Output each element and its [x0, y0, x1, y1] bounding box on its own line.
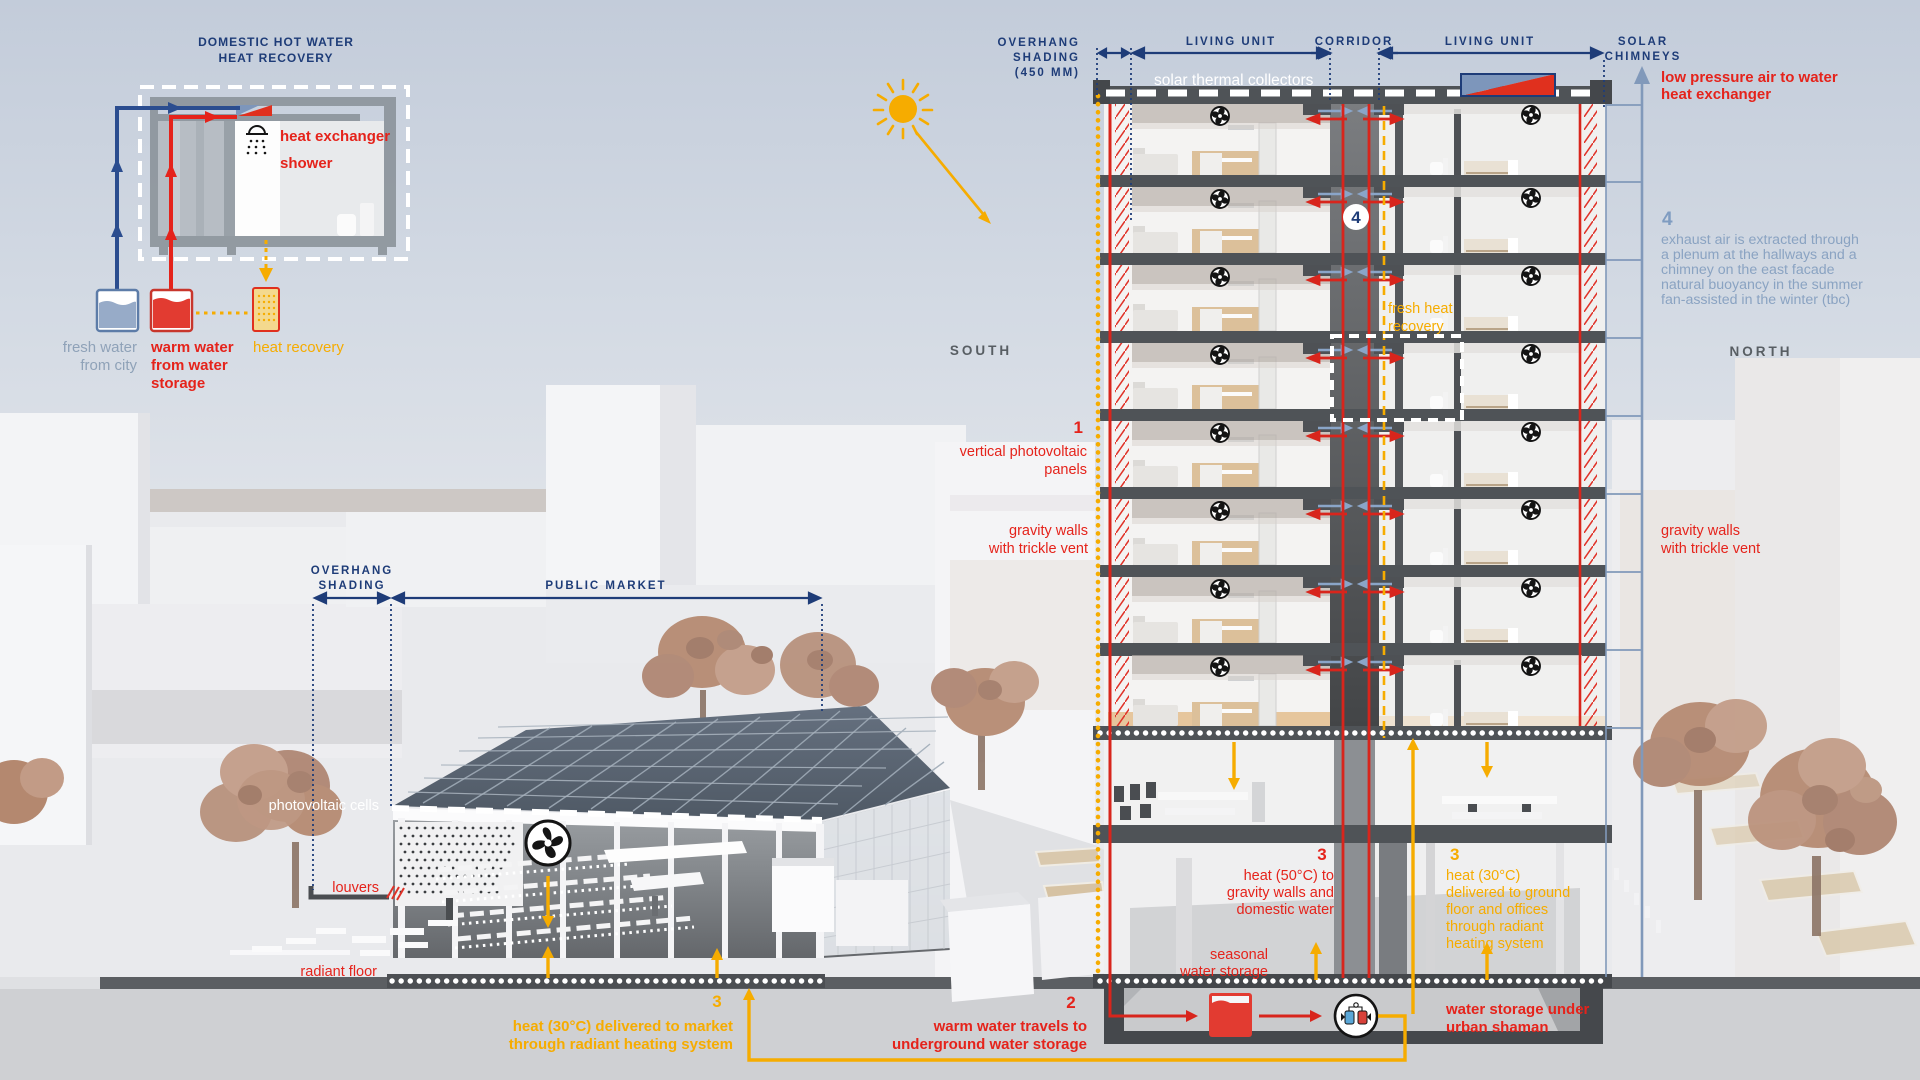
svg-text:through radiant: through radiant	[1446, 919, 1544, 935]
svg-text:underground water storage: underground water storage	[892, 1036, 1087, 1053]
svg-text:seasonal: seasonal	[1210, 947, 1268, 963]
svg-text:with trickle vent: with trickle vent	[1660, 541, 1760, 557]
svg-text:exhaust air is extracted throu: exhaust air is extracted through	[1661, 232, 1859, 248]
svg-text:SOLAR: SOLAR	[1618, 36, 1668, 48]
svg-text:HEAT RECOVERY: HEAT RECOVERY	[218, 51, 333, 65]
svg-text:3: 3	[1450, 845, 1459, 864]
svg-text:fan-assisted in the winter (tb: fan-assisted in the winter (tbc)	[1661, 292, 1850, 308]
svg-text:solar thermal collectors: solar thermal collectors	[1154, 72, 1314, 89]
svg-text:domestic water: domestic water	[1236, 902, 1334, 918]
svg-text:low pressure air to water: low pressure air to water	[1661, 69, 1838, 86]
svg-text:from city: from city	[80, 357, 137, 374]
svg-text:heat (50°C) to: heat (50°C) to	[1244, 868, 1334, 884]
svg-text:(450 MM): (450 MM)	[1015, 67, 1080, 79]
svg-text:CHIMNEYS: CHIMNEYS	[1605, 51, 1682, 63]
svg-text:OVERHANG: OVERHANG	[998, 37, 1080, 49]
svg-text:2: 2	[1066, 993, 1075, 1012]
svg-text:gravity walls: gravity walls	[1661, 523, 1740, 539]
svg-text:LIVING UNIT: LIVING UNIT	[1186, 36, 1276, 48]
svg-text:SOUTH: SOUTH	[950, 343, 1012, 358]
svg-text:heat exchanger: heat exchanger	[1661, 86, 1771, 103]
svg-text:PUBLIC MARKET: PUBLIC MARKET	[545, 580, 666, 592]
svg-text:CORRIDOR: CORRIDOR	[1315, 36, 1394, 48]
svg-text:4: 4	[1351, 208, 1361, 227]
svg-text:recovery: recovery	[1388, 319, 1444, 335]
svg-text:a plenum at the hallways and a: a plenum at the hallways and a	[1661, 247, 1857, 263]
svg-text:water storage: water storage	[1179, 964, 1268, 980]
svg-text:radiant floor: radiant floor	[300, 964, 377, 980]
svg-text:fresh heat: fresh heat	[1388, 301, 1453, 317]
svg-text:gravity walls: gravity walls	[1009, 523, 1088, 539]
svg-text:delivered to ground: delivered to ground	[1446, 885, 1570, 901]
svg-text:with trickle vent: with trickle vent	[988, 541, 1088, 557]
svg-text:heat (30°C): heat (30°C)	[1446, 868, 1520, 884]
svg-text:fresh water: fresh water	[63, 339, 137, 356]
svg-text:vertical photovoltaic: vertical photovoltaic	[960, 444, 1087, 460]
svg-text:warm water travels to: warm water travels to	[933, 1018, 1087, 1035]
svg-text:heat recovery: heat recovery	[253, 339, 344, 356]
svg-text:shower: shower	[280, 155, 333, 172]
svg-text:4: 4	[1662, 209, 1673, 230]
svg-text:louvers: louvers	[332, 880, 379, 896]
svg-text:chimney on the east facade: chimney on the east facade	[1661, 262, 1835, 278]
svg-text:heat exchanger: heat exchanger	[280, 128, 390, 145]
svg-text:through radiant heating system: through radiant heating system	[509, 1036, 733, 1053]
svg-text:3: 3	[1317, 845, 1326, 864]
svg-text:SHADING: SHADING	[318, 580, 385, 592]
svg-text:gravity walls and: gravity walls and	[1227, 885, 1334, 901]
svg-text:storage: storage	[151, 375, 205, 392]
svg-text:floor and offices: floor and offices	[1446, 902, 1548, 918]
svg-text:SHADING: SHADING	[1013, 52, 1080, 64]
svg-text:DOMESTIC HOT WATER: DOMESTIC HOT WATER	[198, 35, 354, 49]
svg-text:from water: from water	[151, 357, 228, 374]
svg-text:LIVING UNIT: LIVING UNIT	[1445, 36, 1535, 48]
svg-text:panels: panels	[1044, 462, 1087, 478]
svg-text:3: 3	[712, 992, 721, 1011]
svg-text:warm water: warm water	[150, 339, 234, 356]
svg-text:heat (30°C) delivered to mark: heat (30°C) delivered to market	[513, 1018, 733, 1035]
svg-text:natural buoyancy in the summer: natural buoyancy in the summer	[1661, 277, 1863, 293]
svg-text:heating system: heating system	[1446, 936, 1544, 952]
svg-text:NORTH: NORTH	[1730, 344, 1793, 359]
svg-text:1: 1	[1074, 418, 1083, 437]
svg-text:urban shaman: urban shaman	[1446, 1019, 1549, 1036]
svg-text:OVERHANG: OVERHANG	[311, 565, 393, 577]
svg-text:photovoltaic cells: photovoltaic cells	[269, 798, 379, 814]
svg-text:water storage under: water storage under	[1445, 1001, 1590, 1018]
